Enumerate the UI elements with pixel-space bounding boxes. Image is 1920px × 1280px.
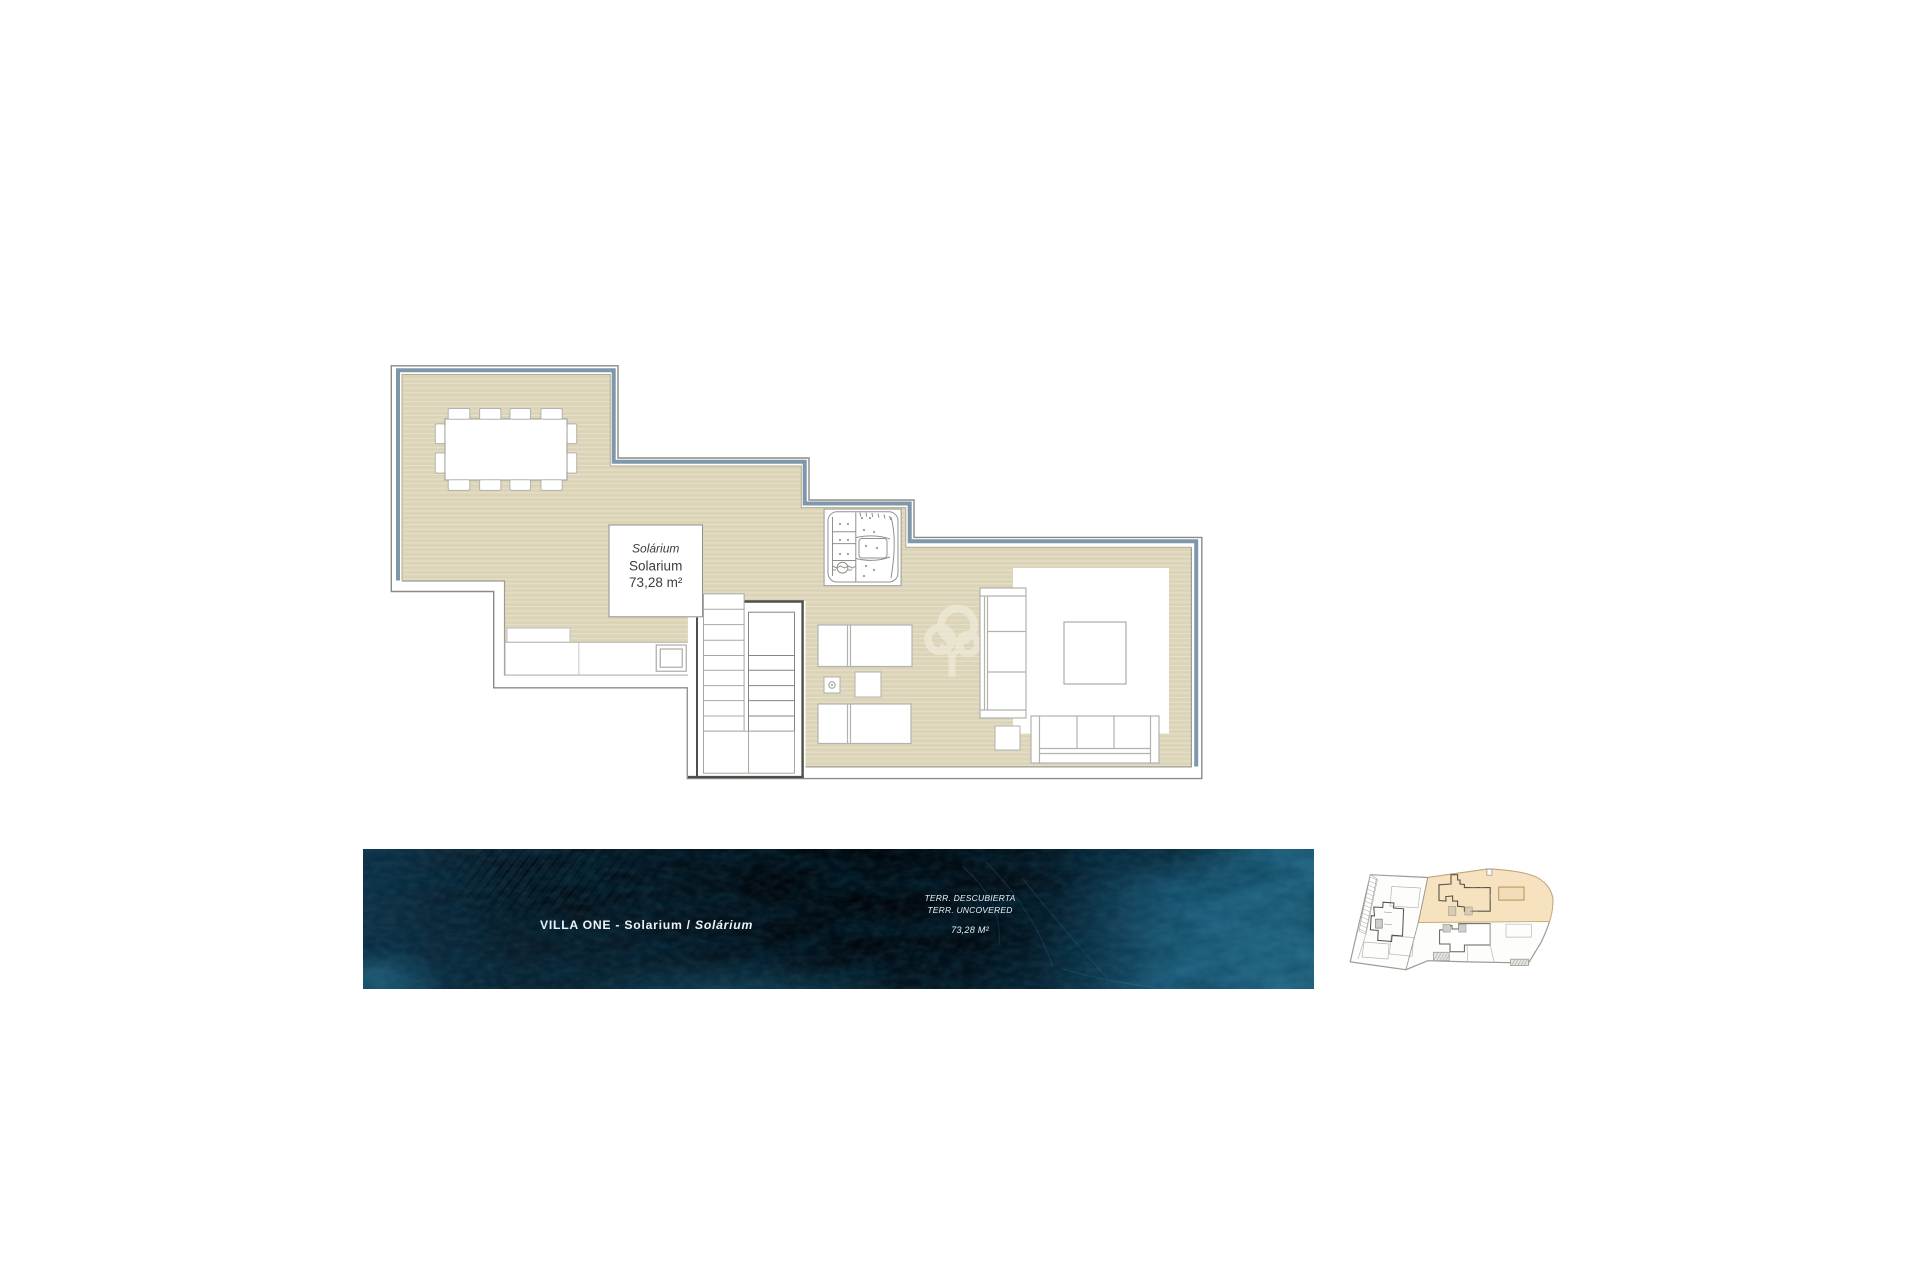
svg-text:73,28 m²: 73,28 m² xyxy=(629,575,683,590)
svg-text:Solarium: Solarium xyxy=(629,559,682,574)
svg-text:Solárium: Solárium xyxy=(632,542,679,556)
